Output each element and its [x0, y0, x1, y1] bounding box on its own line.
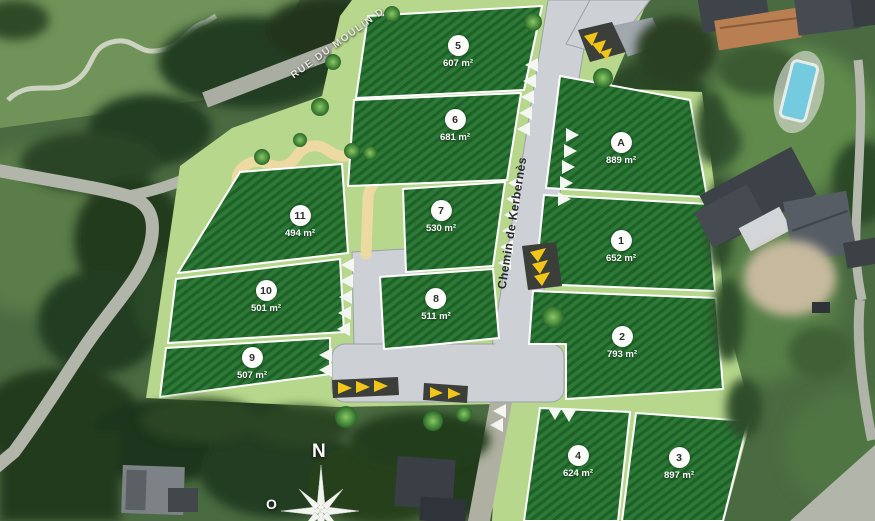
plot-7: [403, 182, 505, 272]
car: [812, 302, 830, 313]
plot-4: [524, 408, 630, 521]
plot-8: [380, 269, 499, 349]
site-plan-map: Chemin de Kerbernès RUE DU MOULIN D N O …: [0, 0, 875, 521]
plot-1: [535, 195, 715, 291]
plot-6: [348, 93, 521, 186]
aerial-plan-graphic: [0, 0, 875, 521]
plot-5: [356, 6, 542, 98]
